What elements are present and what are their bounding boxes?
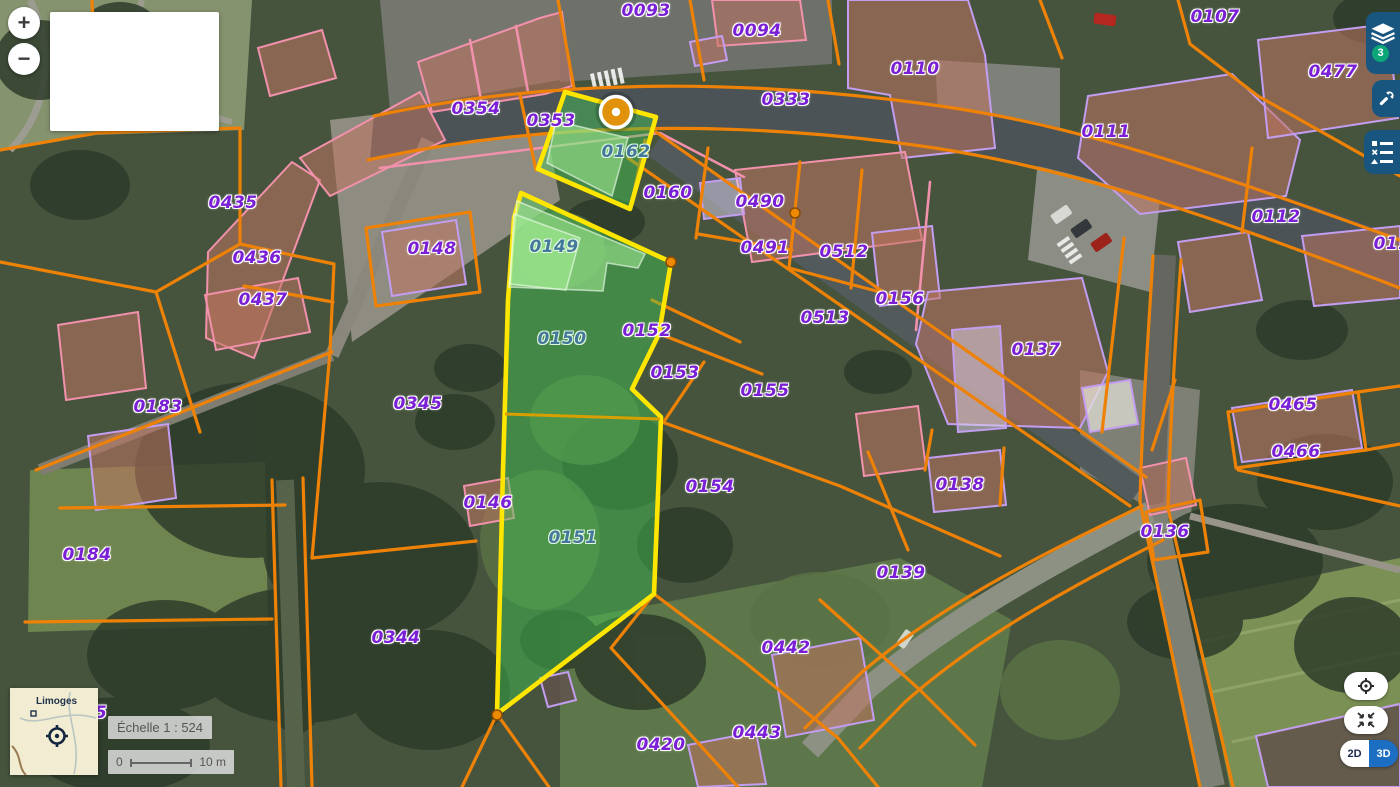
zoom-in-button[interactable]: + [8,7,40,39]
collapse-arrows-icon [1356,712,1376,728]
parcel-vertex-dot [790,208,800,218]
layers-button[interactable]: 3 [1366,12,1400,74]
toggle-2d[interactable]: 2D [1340,740,1369,767]
legend-button[interactable] [1364,130,1400,174]
parcel-vertex-dot [666,257,676,267]
geolocate-button[interactable] [1344,672,1388,700]
layers-count-badge: 3 [1372,45,1389,62]
parcel-vertex-dot [492,710,502,720]
collapse-button[interactable] [1344,706,1388,734]
blank-overlay-panel[interactable] [50,12,219,131]
toggle-3d[interactable]: 3D [1369,740,1398,767]
scale-bar: 0 10 m [108,750,234,774]
crosshair-icon [1357,677,1375,695]
scale-bar-start: 0 [116,755,123,769]
wrench-icon [1375,88,1397,110]
scale-indicator: Échelle 1 : 524 [108,716,212,739]
scale-bar-line [130,758,192,767]
minimap[interactable]: Limoges [10,688,98,775]
zoom-out-button[interactable]: − [8,43,40,75]
2d-3d-toggle[interactable]: 2D 3D [1340,740,1398,767]
tools-button[interactable] [1372,80,1400,117]
legend-list-icon [1369,138,1395,166]
scale-bar-end: 10 m [199,755,226,769]
map-application: 0093009401100107047703330111011201103540… [0,0,1400,787]
minimap-city-label: Limoges [36,696,77,707]
